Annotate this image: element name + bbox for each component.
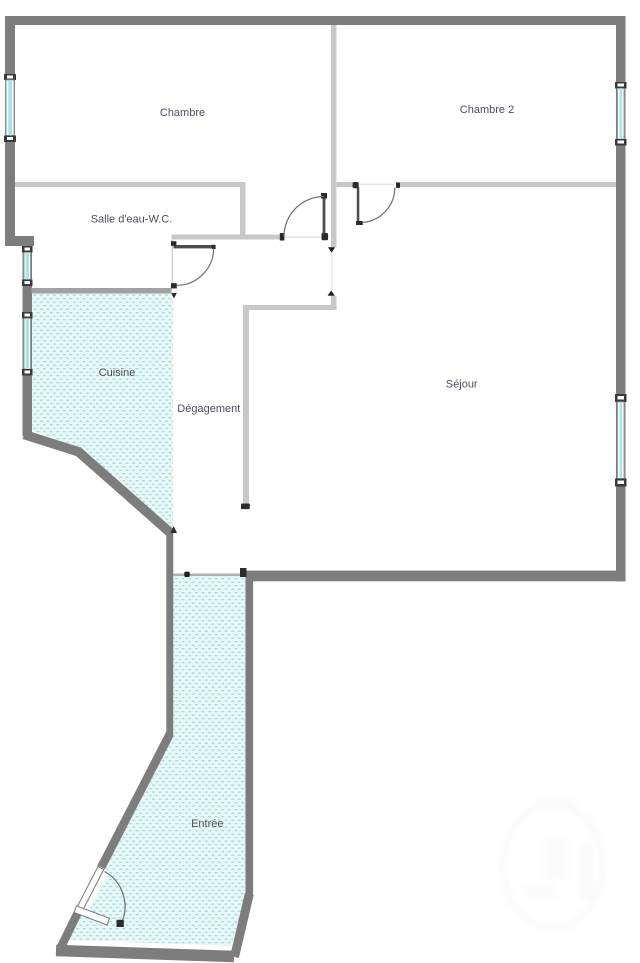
svg-text:Dégagement: Dégagement [177, 403, 240, 415]
svg-text:Entrée: Entrée [191, 818, 223, 830]
svg-text:Salle d'eau-W.C.: Salle d'eau-W.C. [91, 214, 173, 226]
svg-text:Chambre 2: Chambre 2 [460, 104, 514, 116]
svg-text:Séjour: Séjour [446, 379, 478, 391]
svg-text:Cuisine: Cuisine [99, 367, 136, 379]
svg-text:Chambre: Chambre [160, 107, 205, 119]
